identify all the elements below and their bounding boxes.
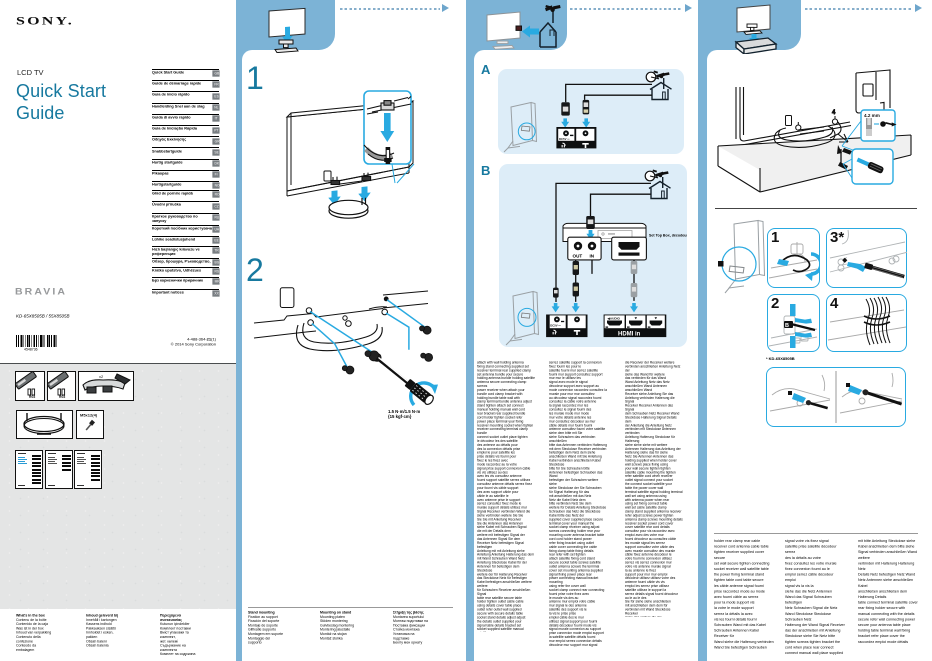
svg-text:DC5V ⎓: DC5V ⎓ bbox=[559, 137, 570, 141]
svg-text:◀AUDIO: ◀AUDIO bbox=[607, 316, 621, 320]
svg-text:R03: R03 bbox=[59, 395, 65, 399]
svg-text:R03: R03 bbox=[29, 395, 35, 399]
svg-text:IN: IN bbox=[590, 254, 595, 259]
svg-text:HDMI in: HDMI in bbox=[618, 332, 641, 338]
svg-text:B: B bbox=[785, 323, 789, 329]
svg-text:x2: x2 bbox=[99, 374, 104, 379]
svg-text:4.2 mm: 4.2 mm bbox=[864, 113, 880, 118]
svg-text:OUT: OUT bbox=[573, 254, 583, 259]
svg-text:Set Top Box, décodeur: Set Top Box, décodeur bbox=[649, 234, 687, 238]
svg-text:M5x12(4): M5x12(4) bbox=[80, 413, 98, 418]
svg-text:4: 4 bbox=[832, 110, 836, 116]
svg-text:DC5V ⎓: DC5V ⎓ bbox=[550, 324, 561, 328]
